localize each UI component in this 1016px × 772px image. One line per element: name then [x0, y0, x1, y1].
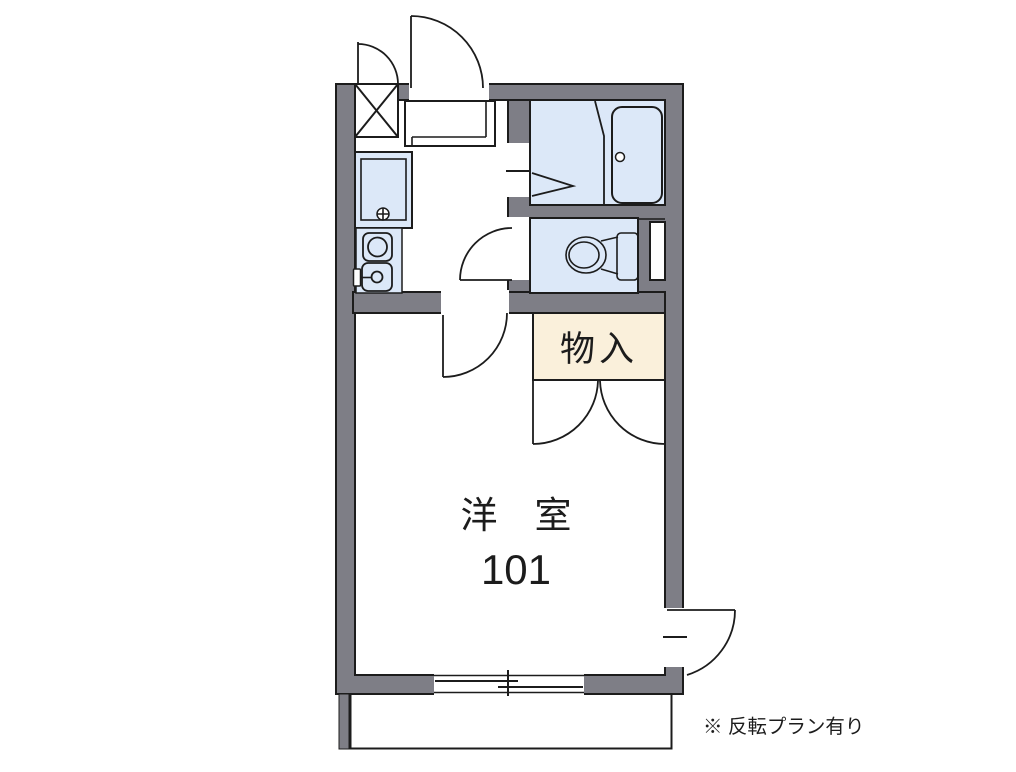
closet-door-right-arc — [600, 380, 665, 444]
balcony-outline — [351, 694, 672, 749]
room-name-label: 洋 室 — [461, 495, 572, 536]
room-number-label: 101 — [481, 546, 551, 593]
toilet-door-arc — [460, 228, 512, 280]
room-door-arc — [443, 313, 507, 377]
bathtub-drain-icon — [616, 153, 625, 162]
floor-plan-page: 物入 洋 室 101 ※ 反転プラン有り — [0, 0, 1016, 772]
entrance-opening — [409, 82, 489, 102]
closet-door-left-arc — [533, 380, 598, 444]
stove-handle — [354, 269, 361, 286]
entrance-step — [405, 101, 495, 146]
pipe-space — [650, 222, 665, 280]
closet-door-leaves — [533, 380, 665, 444]
toilet-door-opening — [506, 217, 532, 280]
storage-door-arc — [358, 44, 398, 84]
entrance-door-arc — [411, 16, 483, 88]
room-door-opening — [441, 290, 509, 315]
balcony-partition — [339, 694, 349, 749]
toilet-room-floor — [530, 218, 638, 293]
closet-label: 物入 — [560, 330, 638, 369]
floor-plan-drawing: 物入 洋 室 101 ※ 反転プラン有り — [0, 0, 1016, 772]
balcony-door-arc — [687, 610, 735, 675]
reverse-plan-note: ※ 反転プラン有り — [703, 716, 864, 738]
hall-bathroom-wall — [508, 100, 530, 313]
bathroom-floor — [530, 100, 665, 205]
